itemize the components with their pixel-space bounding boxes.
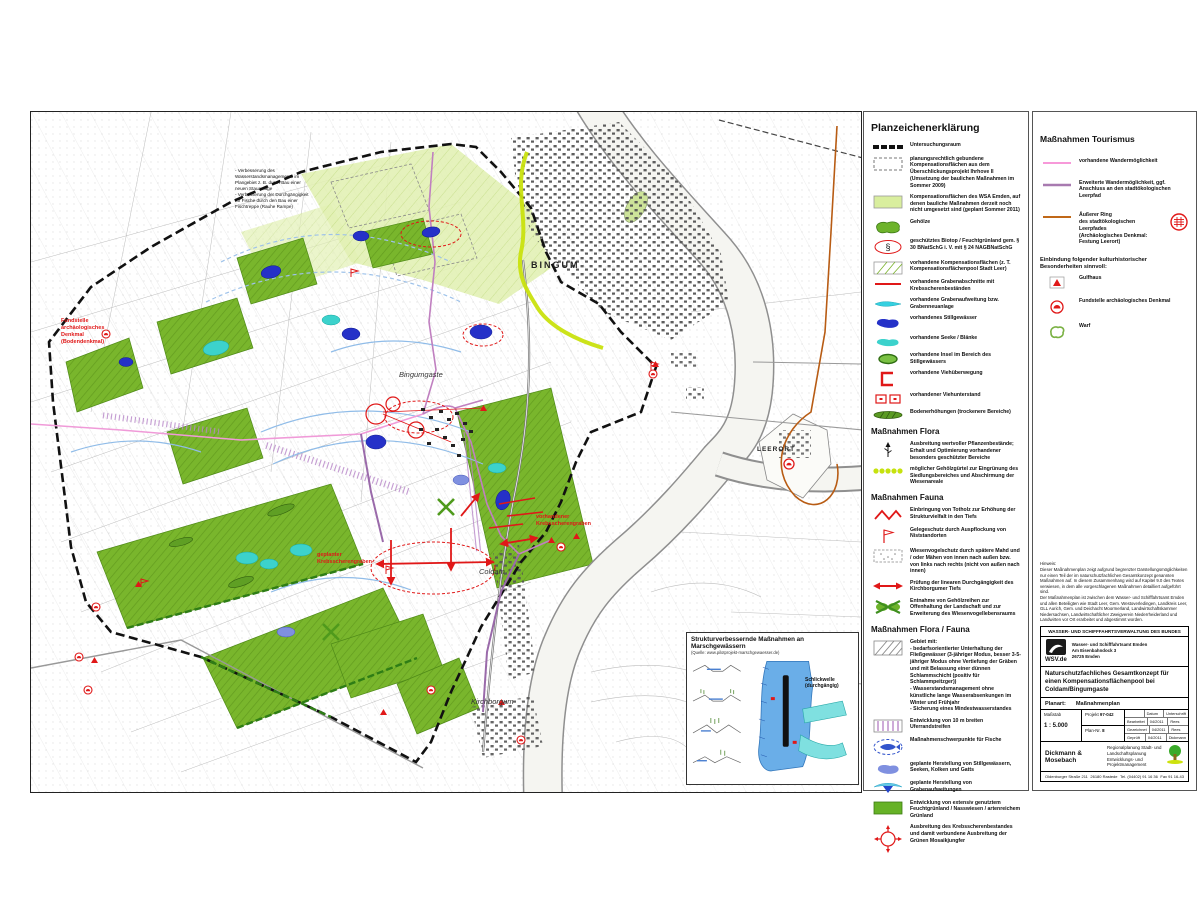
existing-compensation-icon	[871, 260, 905, 275]
section-fauna: Maßnahmen Fauna	[871, 493, 1021, 502]
plannr-label: Plan-Nr.	[1085, 728, 1101, 733]
seeke-icon	[871, 335, 905, 348]
section-florafauna: Maßnahmen Flora / Fauna	[871, 625, 1021, 634]
mowing-icon	[871, 548, 905, 563]
legend-panel: Planzeichenerklärung Untersuchungsraum p…	[863, 111, 1029, 791]
project-title: Naturschutzfachliches Gesamtkonzept für …	[1041, 667, 1188, 698]
sign-row: Geprüft04/2011Dickmann	[1125, 734, 1188, 741]
map-area: BINGUM Bingumgaste Coldam Kirchborgum LE…	[30, 111, 862, 793]
nest-flag-icon	[871, 527, 905, 544]
title-block: WASSER- UND SCHIFFFAHRTSVERWALTUNG DES B…	[1040, 626, 1189, 782]
channel-diagram	[747, 657, 854, 775]
svg-text:§: §	[885, 242, 890, 252]
massstab-value: 1 : 5.000	[1044, 723, 1078, 729]
fish-icon	[871, 737, 905, 756]
col-datum: Datum	[1145, 710, 1165, 717]
cross-section-sketches	[691, 657, 743, 775]
tree-belt-icon	[871, 466, 905, 475]
legend-title: Planzeichenerklärung	[871, 122, 1021, 134]
continuity-arrow-icon	[871, 580, 905, 591]
insel-icon	[871, 352, 905, 365]
bodenerhoehung-icon	[871, 409, 905, 420]
untersuchungsraum-icon	[871, 142, 905, 151]
totholz-icon	[871, 507, 905, 522]
projekt-value: 97-042	[1100, 712, 1114, 717]
walk-extended-icon	[1040, 180, 1074, 189]
massstab-label: Maßstab	[1044, 712, 1078, 717]
hinweis-note: Hinweis: Dieser Maßnahmenplan zeigt aufg…	[1040, 561, 1189, 622]
hedgerow-removal-icon	[871, 598, 905, 615]
tourism-and-titleblock-panel: Maßnahmen Tourismus vorhandene Wandermög…	[1032, 111, 1197, 791]
bound-compensation-icon	[871, 156, 905, 171]
warf-icon	[1040, 323, 1074, 340]
planart-value: Maßnahmenplan	[1076, 701, 1120, 707]
viehueberwegung-icon	[871, 370, 905, 387]
inset-title: Strukturverbessernde Maßnahmen an Marsch…	[691, 636, 854, 650]
feuchtgruenland-icon	[871, 800, 905, 815]
projekt-label: Projekt	[1085, 712, 1099, 717]
sign-row: Bearbeitet04/2011Rees	[1125, 718, 1188, 726]
krebsscheren-ditch-icon	[871, 279, 905, 288]
wsa-compensation-icon	[871, 194, 905, 209]
leerpfad-ring-icon	[1040, 212, 1074, 221]
section-flora: Maßnahmen Flora	[871, 427, 1021, 436]
ditch-widening-icon	[871, 297, 905, 310]
sign-row: Gezeichnet04/2011Rees	[1125, 726, 1188, 734]
krebsscheren-spread-icon	[871, 824, 905, 853]
firm-footer: Oldenburger Straße 211 26180 Rastede Tel…	[1041, 772, 1188, 781]
plan-meta-table: Maßstab 1 : 5.000 Projekt 97-042 Plan-Nr…	[1041, 710, 1188, 742]
viehunterstand-icon	[871, 392, 905, 405]
plan-sheet: BINGUM Bingumgaste Coldam Kirchborgum LE…	[30, 111, 1197, 791]
biotop-icon: §	[871, 238, 905, 255]
inset-panel: Strukturverbessernde Maßnahmen an Marsch…	[686, 632, 859, 785]
planart-label: Planart:	[1045, 701, 1066, 707]
stillgewaesser-icon	[871, 315, 905, 330]
agency-header: WASSER- UND SCHIFFFAHRTSVERWALTUNG DES B…	[1041, 627, 1188, 637]
col-unterschrift: Unterschrift	[1164, 710, 1188, 717]
uferrandstreifen-icon	[871, 718, 905, 733]
fundstelle-icon	[1040, 298, 1074, 315]
wsv-label: WSV.de	[1045, 657, 1067, 663]
gulfhaus-icon	[1040, 275, 1074, 289]
walk-existing-icon	[1040, 158, 1074, 167]
plannr-value: 8	[1102, 728, 1104, 733]
gehoelze-icon	[871, 219, 905, 234]
planned-stillgewaesser-icon	[871, 761, 905, 776]
firm-description: Regionalplanung Stadt- und Landschaftspl…	[1107, 745, 1162, 769]
plant-spread-icon	[871, 441, 905, 458]
legend-label: Untersuchungsraum	[910, 142, 961, 149]
gebiet-hatch-icon	[871, 639, 905, 656]
tourism-title: Maßnahmen Tourismus	[1040, 134, 1189, 144]
planned-widening-icon	[871, 780, 905, 795]
firm-tree-logo	[1166, 744, 1184, 769]
inset-source: (Quelle: www.pilotprojekt-marschgewaesse…	[691, 650, 854, 655]
schlickwelle-label: Schlickwelle (durchgängig)	[805, 677, 855, 689]
firm-name: Dickmann & Mosebach	[1045, 750, 1103, 764]
festung-leerort-icon	[1169, 212, 1189, 237]
tourism-subheading: Einbindung folgender kulturhistorischer …	[1040, 257, 1189, 272]
wsv-logo: WSV.de	[1045, 639, 1067, 663]
agency-address: Wasser- und Schifffahrtsamt Emden Am Eis…	[1072, 642, 1147, 660]
